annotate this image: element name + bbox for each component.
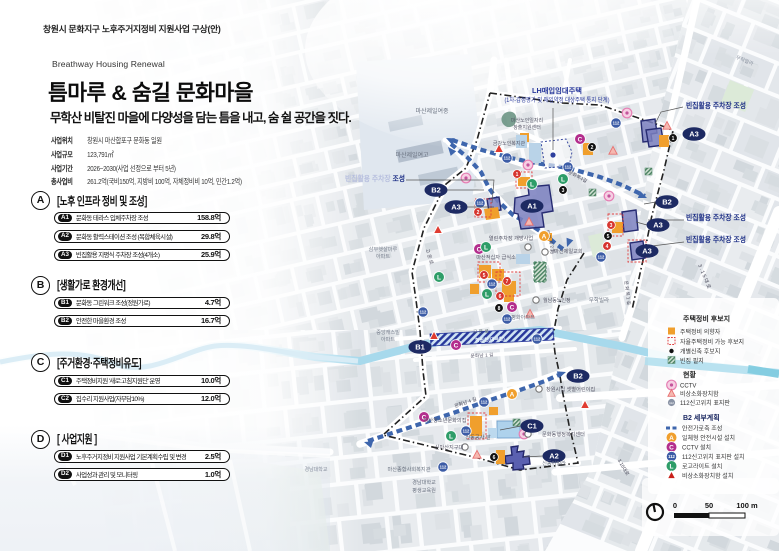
svg-text:신동아빌라: 신동아빌라 — [542, 459, 566, 467]
svg-text:빈집활용 주차장 조성: 빈집활용 주차장 조성 — [686, 234, 746, 244]
svg-text:L: L — [670, 463, 674, 470]
svg-text:마산적십자 급식소: 마산적십자 급식소 — [476, 253, 516, 261]
svg-text:112: 112 — [504, 156, 511, 161]
svg-text:A2: A2 — [549, 452, 559, 461]
svg-text:경남대학교: 경남대학교 — [304, 466, 327, 473]
svg-text:112: 112 — [420, 310, 427, 315]
svg-text:A: A — [542, 233, 547, 240]
svg-text:L: L — [485, 291, 489, 298]
svg-text:현황: 현황 — [683, 370, 696, 379]
svg-text:A3: A3 — [653, 221, 663, 230]
svg-text:월남동노인정: 월남동노인정 — [543, 297, 571, 304]
svg-text:마산청소년문화의집: 마산청소년문화의집 — [424, 416, 467, 424]
svg-text:112: 112 — [489, 282, 496, 287]
svg-text:112: 112 — [613, 121, 620, 126]
svg-text:창원시립 셋별어린이집: 창원시립 셋별어린이집 — [546, 385, 595, 393]
svg-text:신마산지구대: 신마산지구대 — [435, 443, 464, 451]
svg-text:주택정비 의향자: 주택정비 의향자 — [680, 328, 721, 336]
svg-text:중앙캐스빌: 중앙캐스빌 — [376, 328, 400, 336]
svg-text:2: 2 — [591, 145, 594, 151]
svg-text:개별신축 후보지: 개별신축 후보지 — [680, 348, 720, 356]
svg-text:비상소화장치함: 비상소화장치함 — [680, 390, 719, 398]
svg-text:112: 112 — [668, 454, 675, 459]
svg-text:고 운 로: 고 운 로 — [473, 329, 490, 336]
svg-text:112: 112 — [477, 201, 484, 206]
svg-text:빈집활용 주차장 조성: 빈집활용 주차장 조성 — [686, 100, 746, 110]
svg-text:비상소화장치함 설치: 비상소화장치함 설치 — [682, 472, 733, 480]
svg-text:신동공사 앞: 신동공사 앞 — [465, 433, 491, 441]
svg-text:아파트: 아파트 — [376, 252, 391, 260]
svg-text:112: 112 — [463, 429, 470, 434]
svg-text:112: 112 — [481, 400, 488, 405]
svg-text:112: 112 — [669, 401, 674, 405]
svg-text:112신고위치 표지판: 112신고위치 표지판 — [680, 399, 730, 407]
svg-text:주택정비 후보지: 주택정비 후보지 — [683, 314, 730, 323]
svg-text:열린주차장 개방사업: 열린주차장 개방사업 — [489, 234, 534, 242]
svg-text:100 m: 100 m — [736, 501, 758, 510]
svg-text:C: C — [510, 304, 515, 311]
svg-text:금강노인복지관: 금강노인복지관 — [493, 140, 526, 147]
svg-text:50: 50 — [705, 501, 713, 510]
svg-text:L: L — [561, 176, 565, 183]
svg-text:7: 7 — [506, 279, 509, 285]
svg-text:B2: B2 — [662, 198, 672, 207]
svg-text:LH매입임대주택: LH매입임대주택 — [532, 86, 582, 95]
svg-text:평생교육원: 평생교육원 — [412, 486, 436, 494]
svg-text:빈집 필지: 빈집 필지 — [680, 357, 704, 365]
svg-text:3: 3 — [610, 223, 613, 229]
svg-text:C1: C1 — [527, 422, 537, 431]
svg-text:112: 112 — [504, 317, 511, 322]
svg-text:A3: A3 — [642, 247, 652, 256]
svg-text:로고라이트 설치: 로고라이트 설치 — [682, 463, 722, 471]
svg-text:A3: A3 — [689, 130, 699, 139]
svg-text:A1: A1 — [527, 202, 537, 211]
svg-text:마산노인일자리: 마산노인일자리 — [511, 117, 543, 124]
svg-text:빈집활용 주차장 조성: 빈집활용 주차장 조성 — [686, 212, 746, 222]
svg-text:112: 112 — [565, 165, 572, 170]
svg-text:평화아파트: 평화아파트 — [511, 313, 535, 321]
svg-text:1: 1 — [516, 172, 519, 178]
svg-text:삼부햇살마루: 삼부햇살마루 — [369, 245, 398, 253]
svg-text:3: 3 — [562, 188, 565, 194]
svg-text:112: 112 — [534, 337, 541, 342]
svg-text:A: A — [669, 435, 674, 442]
svg-text:무학빌라: 무학빌라 — [589, 296, 609, 304]
svg-text:8: 8 — [498, 306, 501, 312]
svg-text:마산종합사회복지관: 마산종합사회복지관 — [388, 465, 431, 473]
svg-text:4: 4 — [606, 244, 609, 250]
svg-text:안전가로축 조성: 안전가로축 조성 — [682, 425, 722, 433]
svg-text:CCTV 설치: CCTV 설치 — [682, 444, 711, 452]
svg-text:창출지원센터: 창출지원센터 — [513, 124, 541, 131]
svg-text:빈집활용 주차장 조성: 빈집활용 주차장 조성 — [345, 173, 405, 183]
svg-text:문화동행정복지센터: 문화동행정복지센터 — [542, 430, 585, 438]
svg-text:(1차-감정평가 및 매입약정 대상주택 통지 단계): (1차-감정평가 및 매입약정 대상주택 통지 단계) — [505, 96, 610, 104]
svg-text:5: 5 — [483, 273, 486, 279]
svg-text:C: C — [454, 342, 459, 349]
svg-text:L: L — [449, 433, 453, 440]
svg-text:마산제일여중: 마산제일여중 — [415, 107, 449, 115]
svg-text:마산제일여고: 마산제일여고 — [395, 151, 429, 159]
svg-text:A: A — [510, 391, 515, 398]
svg-text:1: 1 — [672, 136, 675, 142]
svg-text:A3: A3 — [451, 203, 461, 212]
svg-text:6: 6 — [493, 455, 496, 461]
svg-text:L: L — [484, 244, 488, 251]
svg-text:경남대학교: 경남대학교 — [412, 478, 436, 486]
svg-text:112: 112 — [598, 255, 605, 260]
svg-text:C: C — [669, 444, 674, 451]
svg-text:L: L — [530, 181, 534, 188]
svg-text:112신고위치 표지판 설치: 112신고위치 표지판 설치 — [682, 453, 745, 461]
svg-text:0: 0 — [673, 501, 677, 510]
svg-text:B2 세부계획: B2 세부계획 — [683, 413, 720, 422]
svg-text:L: L — [437, 274, 441, 281]
svg-text:B2: B2 — [431, 186, 441, 195]
svg-text:일체형 안전시설 설치: 일체형 안전시설 설치 — [682, 434, 735, 442]
svg-text:아파트: 아파트 — [381, 335, 396, 343]
svg-text:C: C — [578, 136, 583, 143]
svg-text:2: 2 — [477, 210, 480, 216]
svg-text:6: 6 — [499, 294, 502, 300]
svg-text:112: 112 — [440, 465, 447, 470]
svg-text:B2: B2 — [573, 372, 583, 381]
svg-text:자율주택정비 가능 후보지: 자율주택정비 가능 후보지 — [680, 338, 744, 346]
svg-text:CCTV: CCTV — [680, 384, 696, 390]
svg-text:5: 5 — [607, 234, 610, 240]
svg-text:B1: B1 — [415, 343, 425, 352]
